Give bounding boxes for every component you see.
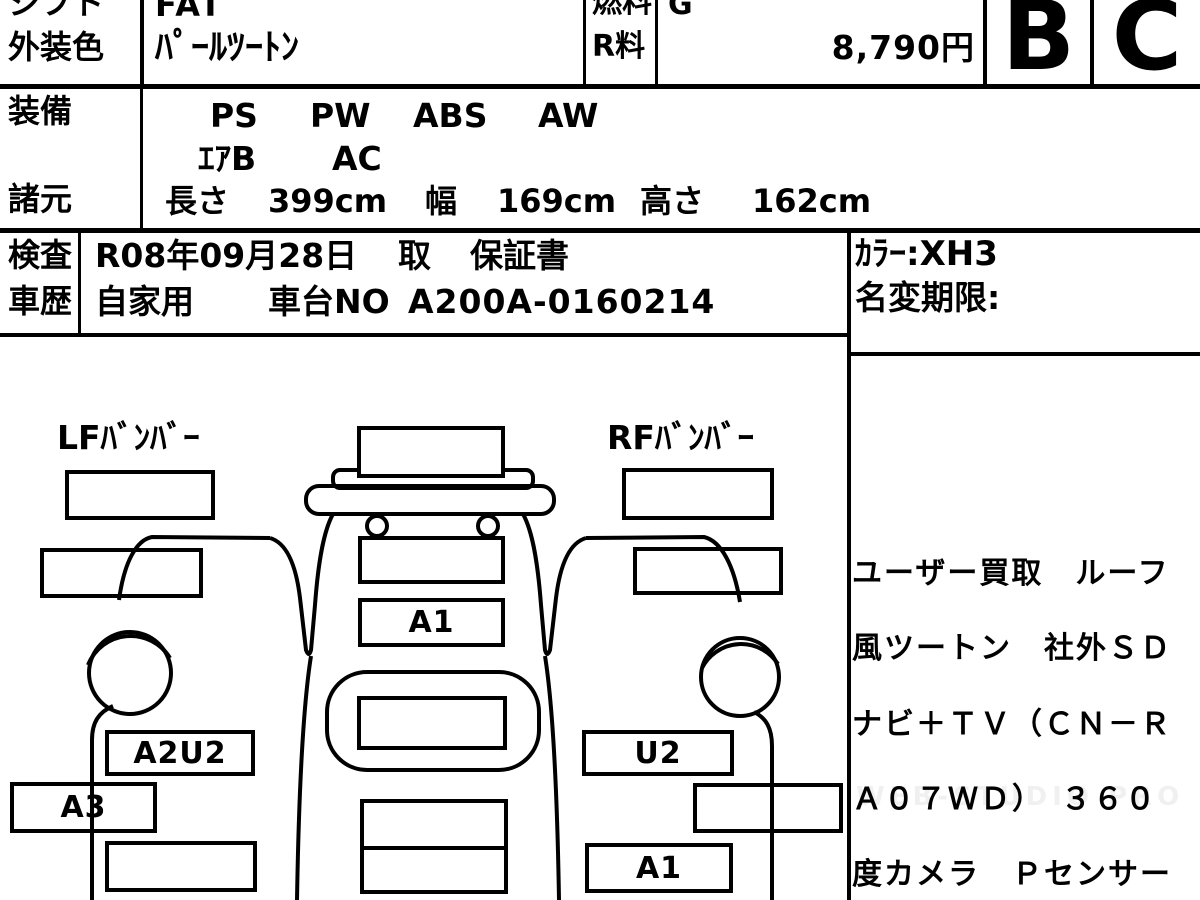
callout-front-center bbox=[357, 426, 505, 478]
callout-left-door-a2u2: A2U2 bbox=[105, 730, 255, 776]
body-inner-right bbox=[545, 656, 559, 900]
vline-fuel-value bbox=[655, 0, 658, 88]
spec-height-label: 高さ bbox=[640, 184, 704, 219]
left-front-wheel bbox=[89, 632, 171, 714]
equipment-item-pw: PW bbox=[310, 98, 371, 134]
vline-inspection-col bbox=[78, 232, 81, 333]
rf-bumper-label: RFﾊﾞﾝﾊﾞｰ bbox=[607, 420, 754, 456]
inspection-date: R08年09月28日 bbox=[95, 238, 357, 274]
inspection-label: 検査 bbox=[8, 238, 72, 273]
callout-bumper-face bbox=[358, 536, 505, 584]
vline-right-column bbox=[847, 228, 851, 900]
divider-under-specs bbox=[0, 228, 1200, 233]
interior-grade: C bbox=[1094, 0, 1200, 86]
callout-rf-bumper bbox=[622, 468, 774, 520]
spec-height-value: 162cm bbox=[752, 184, 871, 219]
history-use: 自家用 bbox=[95, 284, 194, 320]
washer-nozzle-left bbox=[367, 516, 387, 536]
callout-right-fender bbox=[633, 547, 783, 595]
callout-roof bbox=[360, 799, 508, 894]
spec-length-label: 長さ bbox=[165, 184, 229, 219]
inspection-warranty: 保証書 bbox=[470, 238, 569, 274]
scan-watermark: WEB-STUDIO PRO bbox=[856, 782, 1184, 812]
notes-column: ユーザー買取 ルーフ 風ツートン 社外ＳＤ ナビ＋ＴＶ（ＣＮ－Ｒ Ａ０７ＷＤ） … bbox=[852, 522, 1198, 900]
divider-under-inspection bbox=[0, 333, 847, 337]
body-shoulder-right bbox=[754, 712, 772, 746]
exterior-color-label: 外装色 bbox=[8, 30, 104, 65]
divider-under-colorcode bbox=[847, 352, 1200, 356]
exterior-grade: B bbox=[987, 0, 1090, 86]
equipment-label: 装備 bbox=[8, 94, 72, 129]
callout-right-door-u2: U2 bbox=[582, 730, 734, 776]
exterior-color-value: ﾊﾟｰﾙﾂｰﾄﾝ bbox=[155, 28, 299, 68]
shift-value: FAT bbox=[155, 0, 223, 23]
body-inner-left bbox=[297, 656, 311, 900]
callout-left-lower bbox=[105, 841, 257, 892]
vline-fuel-col bbox=[583, 0, 586, 88]
history-chassis-label: 車台NO bbox=[268, 284, 390, 320]
fuel-value: G bbox=[668, 0, 693, 21]
left-wheel-outer-arc bbox=[88, 636, 170, 665]
recycle-fee-label: R料 bbox=[592, 30, 645, 63]
note-line: 風ツートン 社外ＳＤ bbox=[852, 632, 1198, 672]
fuel-label: 燃料 bbox=[592, 0, 652, 19]
washer-nozzle-right bbox=[478, 516, 498, 536]
vline-label-col-top bbox=[140, 0, 144, 88]
spec-width-label: 幅 bbox=[425, 184, 457, 219]
roof-box-divider bbox=[364, 846, 504, 850]
equipment-item-aw: AW bbox=[538, 98, 598, 134]
history-chassis-no: A200A-0160214 bbox=[408, 284, 715, 320]
callout-right-quarter bbox=[693, 783, 843, 833]
front-bumper-bar bbox=[306, 486, 554, 514]
right-front-wheel bbox=[701, 638, 779, 716]
note-line: ユーザー買取 ルーフ bbox=[852, 557, 1198, 597]
note-line: ナビ＋ＴＶ（ＣＮ－Ｒ bbox=[852, 708, 1198, 748]
callout-lf-bumper bbox=[65, 470, 215, 520]
right-wheel-outer-arc bbox=[702, 644, 778, 668]
spec-width-value: 169cm bbox=[497, 184, 616, 219]
color-code: ｶﾗｰ:XH3 bbox=[855, 236, 998, 273]
specs-label: 諸元 bbox=[8, 182, 72, 217]
note-line: 度カメラ Ｐセンサー bbox=[852, 858, 1198, 898]
callout-hood-a1: A1 bbox=[358, 598, 505, 647]
shift-label: シフト bbox=[8, 0, 104, 21]
equipment-item-abs: ABS bbox=[413, 98, 487, 134]
lf-bumper-label: LFﾊﾞﾝﾊﾞｰ bbox=[57, 420, 200, 456]
equipment-item-airbag: ｴｱB bbox=[198, 141, 256, 177]
hood-arch-right bbox=[523, 514, 586, 654]
equipment-item-ps: PS bbox=[210, 98, 258, 134]
inspection-acquired: 取 bbox=[398, 238, 431, 274]
name-change-deadline: 名変期限: bbox=[855, 280, 1000, 316]
callout-windshield bbox=[357, 696, 507, 750]
recycle-fee-value: 8,790円 bbox=[700, 30, 975, 66]
vline-label-col-mid bbox=[140, 88, 143, 228]
callout-left-rocker-a3: A3 bbox=[10, 782, 157, 833]
hood-arch-left bbox=[270, 514, 333, 654]
spec-length-value: 399cm bbox=[268, 184, 387, 219]
callout-right-lower-a1: A1 bbox=[585, 843, 733, 893]
history-label: 車歴 bbox=[8, 284, 72, 319]
callout-left-fender bbox=[40, 548, 203, 598]
auction-sheet: シフト FAT 外装色 ﾊﾟｰﾙﾂｰﾄﾝ 燃料 G R料 8,790円 B C … bbox=[0, 0, 1200, 900]
equipment-item-ac: AC bbox=[332, 141, 382, 177]
